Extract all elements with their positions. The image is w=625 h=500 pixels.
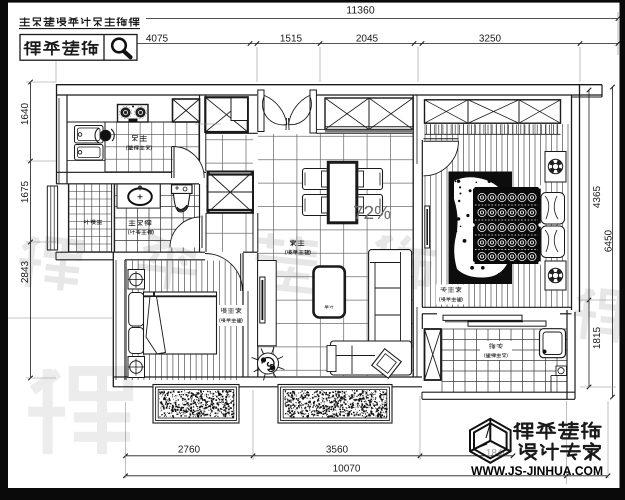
svg-text:2843: 2843 (20, 260, 31, 283)
svg-text:WWW.JS-JINHUA.COM: WWW.JS-JINHUA.COM (471, 464, 603, 478)
svg-text:4365: 4365 (592, 185, 603, 208)
svg-text:3560: 3560 (326, 445, 349, 456)
svg-text:1515: 1515 (280, 33, 303, 44)
svg-text:3250: 3250 (479, 33, 502, 44)
svg-text:1675: 1675 (20, 180, 31, 203)
svg-text:6450: 6450 (604, 229, 615, 252)
svg-text:1815: 1815 (592, 326, 603, 349)
svg-text:72%: 72% (353, 203, 391, 224)
svg-text:11360: 11360 (346, 5, 375, 17)
svg-text:2760: 2760 (178, 445, 201, 456)
svg-text:1640: 1640 (20, 102, 31, 125)
svg-text:10070: 10070 (333, 464, 361, 475)
svg-text:2045: 2045 (356, 33, 379, 44)
svg-text:4075: 4075 (146, 33, 169, 44)
